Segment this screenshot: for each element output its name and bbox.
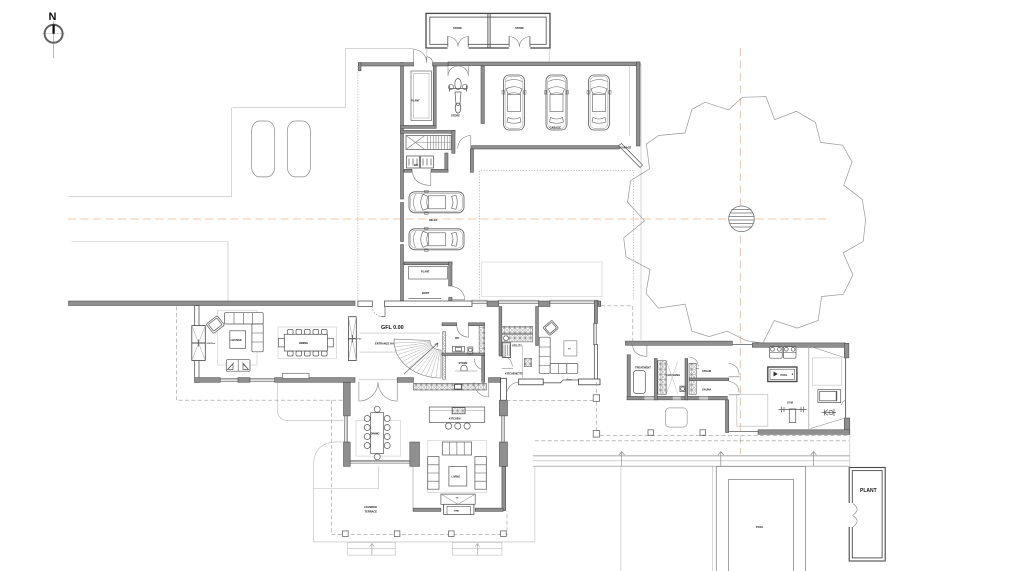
svg-text:POOL: POOL: [756, 525, 764, 529]
svg-text:TERRACE: TERRACE: [365, 510, 378, 514]
svg-text:WC: WC: [414, 163, 418, 167]
svg-text:PLANT: PLANT: [421, 270, 430, 274]
svg-text:SAUNA: SAUNA: [702, 388, 711, 392]
svg-text:KITCHENETTE: KITCHENETTE: [505, 372, 523, 376]
svg-text:LIVING: LIVING: [452, 475, 461, 479]
svg-text:STORE: STORE: [459, 361, 468, 365]
svg-text:STEAM: STEAM: [702, 369, 711, 373]
svg-text:FIRE: FIRE: [454, 511, 460, 513]
svg-text:LOUNGE: LOUNGE: [231, 338, 242, 342]
svg-text:PLANT: PLANT: [411, 99, 420, 103]
svg-text:4No EV: 4No EV: [429, 219, 438, 222]
svg-text:POOL: POOL: [781, 374, 788, 377]
svg-text:STORE: STORE: [451, 114, 460, 118]
svg-text:GYM: GYM: [787, 401, 793, 405]
svg-text:UTILITY: UTILITY: [512, 344, 522, 348]
svg-text:WC: WC: [455, 336, 459, 340]
svg-text:DINING: DINING: [299, 341, 308, 345]
svg-text:PLANT: PLANT: [860, 488, 877, 494]
svg-text:GARAGE: GARAGE: [550, 126, 562, 130]
svg-text:BOOT: BOOT: [422, 291, 430, 295]
svg-text:COVERED: COVERED: [364, 505, 377, 509]
svg-text:N: N: [49, 11, 57, 23]
svg-text:GARAGE: GARAGE: [620, 146, 632, 150]
svg-text:2-W Fire: 2-W Fire: [207, 343, 216, 345]
svg-text:GFL 0.00: GFL 0.00: [381, 325, 404, 331]
svg-text:TREATMENT: TREATMENT: [635, 366, 651, 370]
svg-text:DINING: DINING: [371, 432, 380, 436]
svg-text:STORE: STORE: [453, 26, 462, 30]
svg-text:KITCHEN: KITCHEN: [449, 417, 461, 421]
svg-text:STORE: STORE: [515, 26, 524, 30]
